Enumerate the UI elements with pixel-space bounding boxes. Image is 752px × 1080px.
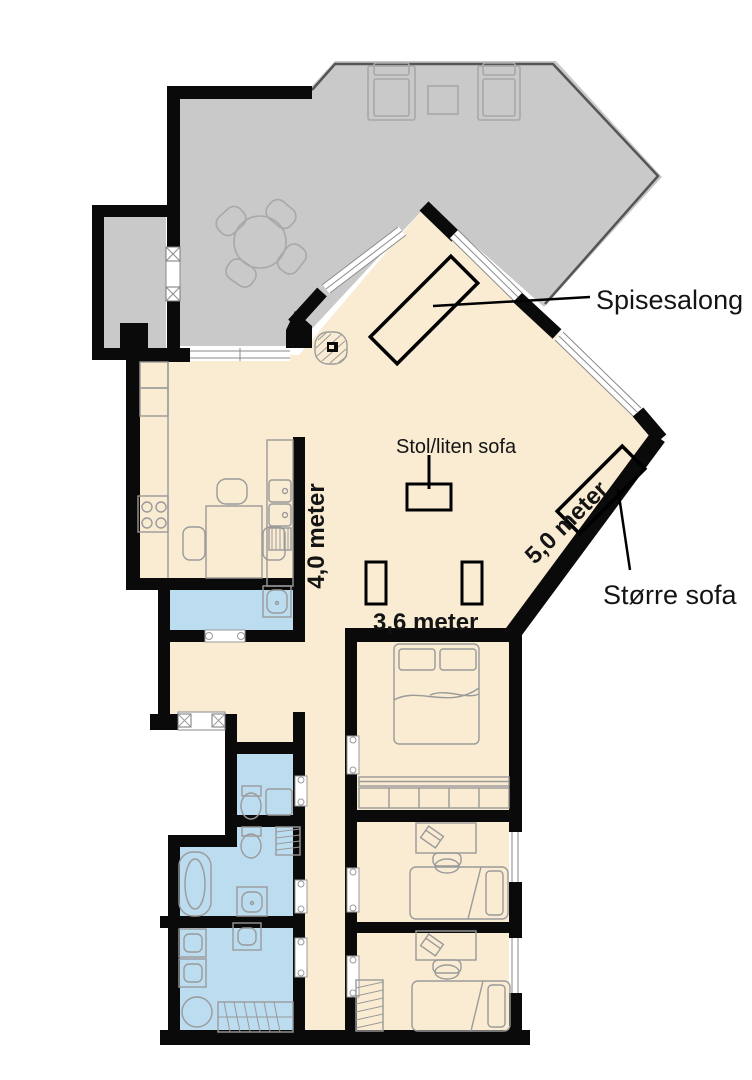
window	[190, 348, 290, 361]
laundry-floor	[178, 928, 293, 1031]
chimney	[120, 323, 148, 350]
wall-segment	[92, 205, 180, 217]
measurement-4-0-meter: 4,0 meter	[303, 483, 330, 588]
door	[347, 868, 359, 912]
wall-segment	[168, 835, 180, 1045]
large-sofa-label: Større sofa	[603, 580, 738, 610]
wall-segment	[167, 86, 180, 360]
wall-segment	[92, 205, 104, 360]
wall-segment	[345, 810, 522, 822]
wall-segment	[158, 578, 170, 730]
door	[295, 880, 307, 913]
wall-segment	[225, 714, 237, 847]
measurement-3-6-meter: 3,6 meter	[373, 609, 478, 636]
door	[205, 630, 245, 642]
wall-segment	[160, 1030, 530, 1045]
wall-segment	[167, 86, 312, 99]
dishwasher	[269, 528, 291, 550]
wall-segment	[293, 712, 305, 1032]
wall-segment	[126, 348, 140, 590]
window	[166, 247, 180, 301]
window	[509, 938, 522, 993]
door	[347, 736, 359, 774]
wc1-floor	[170, 585, 293, 632]
wall-segment	[126, 578, 305, 590]
large-sofa-pointer-line	[618, 489, 630, 570]
small-sofa-label: Stol/liten sofa	[396, 436, 517, 458]
door	[295, 776, 307, 806]
door	[295, 938, 307, 977]
dining-area-label: Spisesalong	[596, 285, 743, 315]
window	[509, 832, 522, 882]
door	[347, 956, 359, 997]
floor-plan: Spisesalong Stol/liten sofa Større sofa …	[0, 0, 752, 1080]
wc2-floor	[237, 752, 293, 815]
entrance-door	[178, 712, 225, 730]
